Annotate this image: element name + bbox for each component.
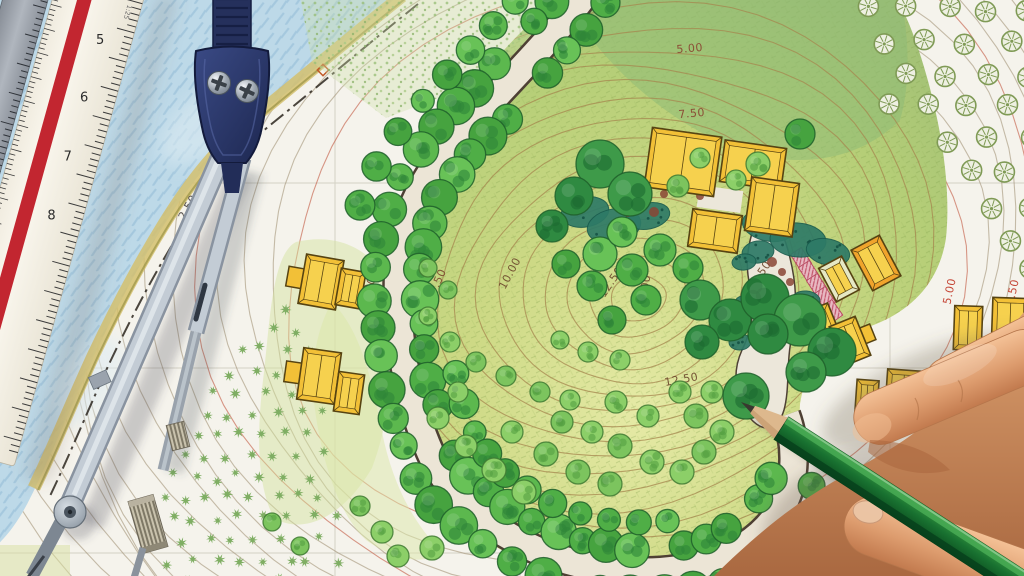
tree: [350, 496, 370, 516]
orchard-tree-symbol: [935, 66, 955, 86]
tree: [640, 450, 664, 474]
contour-label: 5.00: [676, 41, 704, 56]
tree: [615, 533, 650, 568]
orchard-tree-symbol: [982, 199, 1002, 219]
orchard-tree-symbol: [937, 132, 957, 152]
tree: [539, 489, 567, 517]
tree: [291, 537, 309, 555]
tree: [419, 259, 437, 277]
tree: [411, 89, 434, 112]
tree: [369, 372, 405, 408]
tree: [631, 285, 661, 315]
tree: [410, 335, 439, 364]
shrub-accent: [660, 190, 668, 198]
house: [744, 177, 799, 237]
orchard-tree-symbol: [879, 94, 899, 114]
tree: [555, 177, 593, 215]
tree: [711, 513, 741, 543]
tree: [608, 172, 652, 216]
tree: [378, 403, 408, 433]
contour-label: 7.50: [678, 106, 706, 121]
tree: [551, 411, 573, 433]
tree: [670, 460, 694, 484]
tree: [419, 307, 437, 325]
shrub-accent: [778, 268, 786, 276]
tree: [482, 458, 506, 482]
tree: [701, 381, 723, 403]
tree: [501, 421, 523, 443]
tree: [551, 331, 569, 349]
site-plan-scene: 5.00 7.50 10.00 5.00 7.50 10.00 12.50 13…: [0, 0, 1024, 576]
tree: [345, 190, 375, 220]
tree: [361, 252, 391, 282]
tree: [690, 148, 710, 168]
tree: [577, 271, 607, 301]
tree: [552, 250, 580, 278]
tree: [605, 391, 627, 413]
tree: [466, 352, 486, 372]
orchard-tree-symbol: [998, 95, 1018, 115]
tree: [644, 234, 676, 266]
tree: [420, 536, 444, 560]
tree: [456, 36, 484, 64]
orchard-tree-symbol: [896, 0, 916, 16]
tree: [598, 472, 622, 496]
orchard-tree-symbol: [1000, 231, 1020, 251]
tree: [390, 432, 417, 459]
tree: [439, 281, 457, 299]
tree: [512, 480, 536, 504]
tree: [656, 509, 679, 532]
tree: [479, 12, 507, 40]
tree: [384, 118, 412, 146]
tree: [667, 175, 689, 197]
orchard-tree-symbol: [1002, 31, 1022, 51]
tree: [578, 342, 598, 362]
orchard-tree-symbol: [858, 0, 878, 16]
shrub-accent: [767, 257, 777, 267]
tree: [387, 545, 409, 567]
tree: [669, 381, 691, 403]
tree: [365, 340, 397, 372]
shrub-accent: [786, 278, 794, 286]
tree: [608, 434, 632, 458]
tree: [554, 37, 581, 64]
orchard-tree-symbol: [977, 127, 997, 147]
house: [333, 371, 364, 414]
photo-landscape-site-plan: 5.00 7.50 10.00 5.00 7.50 10.00 12.50 13…: [0, 0, 1024, 576]
orchard-tree-symbol: [954, 34, 974, 54]
tree: [362, 152, 391, 181]
tree: [684, 404, 708, 428]
tree: [448, 382, 468, 402]
shrub-accent: [649, 207, 659, 217]
tree: [607, 217, 637, 247]
tree: [598, 306, 626, 334]
ruler-number: 6: [80, 91, 88, 106]
tree: [692, 440, 716, 464]
tree: [581, 421, 603, 443]
ruler-number: 7: [64, 150, 72, 165]
tree: [710, 420, 734, 444]
house: [688, 209, 743, 254]
orchard-tree-symbol: [896, 63, 916, 83]
orchard-tree-symbol: [976, 2, 996, 22]
tree: [685, 325, 719, 359]
tree: [455, 435, 477, 457]
tree: [427, 407, 449, 429]
tree: [534, 442, 558, 466]
tree: [364, 222, 399, 257]
ruler-number: 8: [47, 208, 55, 223]
tree: [726, 170, 746, 190]
tree: [440, 332, 460, 352]
tree: [263, 513, 281, 531]
tree: [536, 210, 568, 242]
compass-screw: [236, 80, 259, 103]
tree: [433, 60, 462, 89]
tree: [673, 253, 703, 283]
tree: [469, 530, 497, 558]
orchard-tree-symbol: [956, 95, 976, 115]
tree: [371, 521, 393, 543]
tree: [746, 152, 770, 176]
orchard-tree-symbol: [994, 162, 1014, 182]
tree: [496, 366, 516, 386]
tree: [597, 508, 620, 531]
tree: [785, 119, 815, 149]
tree: [637, 405, 659, 427]
tree: [569, 502, 592, 525]
tree: [560, 390, 580, 410]
ruler-number: 5: [96, 33, 104, 48]
tree: [786, 352, 826, 392]
tree: [521, 8, 547, 34]
tree: [626, 510, 651, 535]
orchard-tree-symbol: [914, 30, 934, 50]
tree: [497, 547, 526, 576]
tree: [748, 314, 788, 354]
orchard-tree-symbol: [874, 34, 894, 54]
tree: [530, 382, 550, 402]
compass-screw: [208, 72, 231, 95]
orchard-tree-symbol: [978, 65, 998, 85]
orchard-tree-symbol: [918, 94, 938, 114]
tree: [755, 462, 787, 494]
tree: [566, 460, 590, 484]
tree: [532, 58, 562, 88]
orchard-tree-symbol: [962, 160, 982, 180]
tree: [616, 254, 648, 286]
tree: [610, 350, 630, 370]
orchard-tree-symbol: [940, 0, 960, 16]
